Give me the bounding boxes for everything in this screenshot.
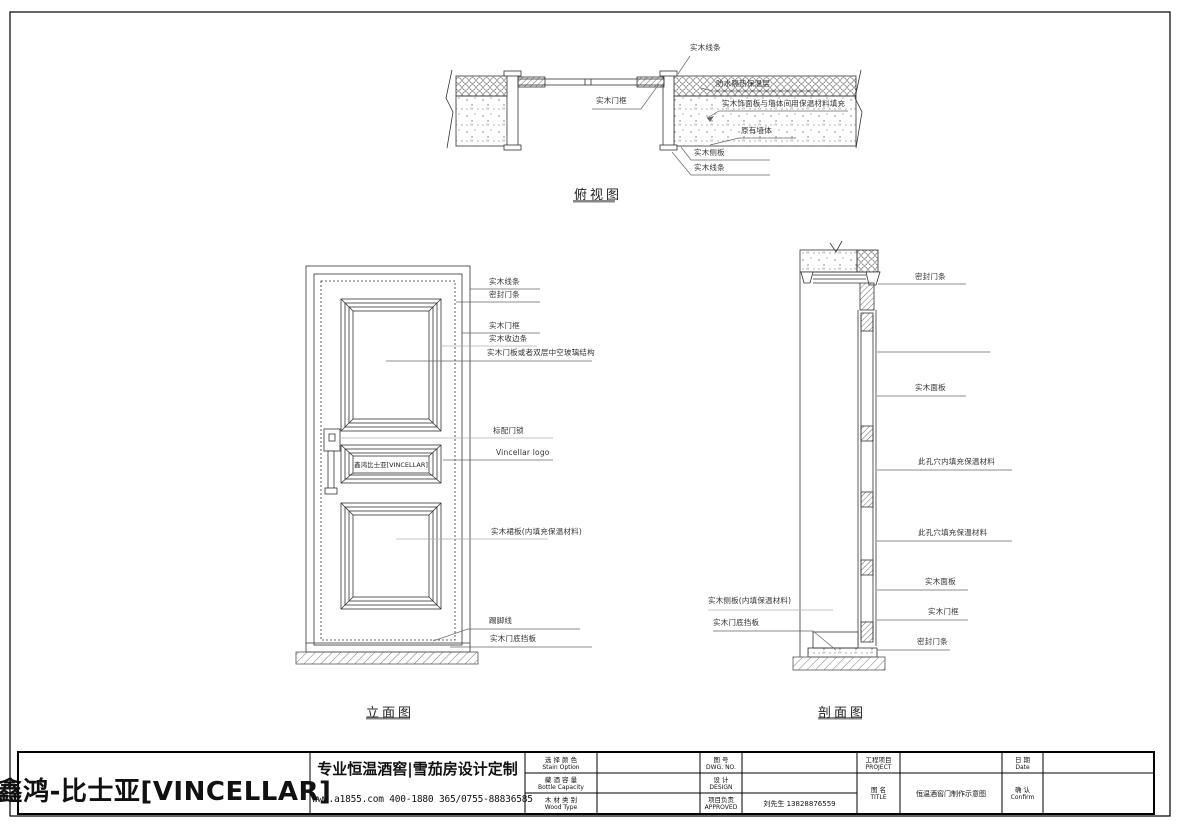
label-trim-top: 实木线条 (690, 44, 721, 53)
label-trim: 实木线条 (489, 278, 520, 287)
label-side-panel-fill: 实木侧板(内填保温材料) (708, 597, 791, 606)
door-jamb (507, 74, 518, 147)
section-drawing (708, 241, 1012, 720)
label-bottom-board: 实木门底挡板 (490, 635, 536, 644)
label-lower-panel: 实木裙板(内填充保温材料) (491, 528, 582, 537)
field-dwg-cn: 图 号 (700, 756, 742, 764)
label-logo: Vincellar logo (496, 449, 550, 458)
break-mark (446, 70, 453, 148)
wall-concrete-hatch (456, 96, 512, 146)
label-seal-strip: 密封门条 (489, 291, 520, 300)
door-leaf-section (858, 310, 876, 646)
field-date: 日 期 Date (1002, 756, 1043, 771)
label-skirting: 踢脚线 (489, 617, 512, 626)
field-project-cn: 工程项目 (857, 756, 900, 764)
field-confirm-en: Confirm (1002, 794, 1043, 801)
field-wood-type: 木 材 类 别 Wood Type (525, 796, 597, 811)
label-lock: 标配门锁 (493, 427, 524, 436)
field-title-en: TITLE (857, 794, 900, 801)
label-seal-strip-bottom: 密封门条 (917, 638, 948, 647)
field-date-en: Date (1002, 764, 1043, 771)
label-cavity-fill-1: 此孔穴内填充保温材料 (918, 458, 995, 467)
door-jamb (663, 74, 674, 147)
label-door-frame-section: 实木门框 (928, 608, 959, 617)
label-face-panel-top: 实木面板 (915, 384, 946, 393)
company-contact: www.a1855.com 400-1880 365/0755-88836585 (312, 794, 523, 805)
field-project: 工程项目 PROJECT (857, 756, 900, 771)
drawing-title-value: 恒温酒窖门制作示意图 (900, 789, 1002, 799)
section-title: 剖面图 (818, 702, 866, 721)
company-name: 鑫鸿-比士亚[VINCELLAR] (20, 766, 308, 812)
company-slogan: 专业恒温酒窖|雪茄房设计定制 (312, 758, 523, 779)
field-confirm-cn: 确 认 (1002, 786, 1043, 794)
threshold (808, 648, 877, 657)
elevation-drawing (296, 266, 592, 720)
field-stain-cn: 选 择 颜 色 (525, 756, 597, 764)
door-logo-text: 鑫鸿比士亚[VINCELLAR] (353, 459, 429, 469)
top-view-title: 俯视图 (574, 184, 622, 203)
approved-value: 刘先生 13828876559 (742, 799, 857, 809)
field-stain-option: 选 择 颜 色 Stain Option (525, 756, 597, 771)
field-confirm: 确 认 Confirm (1002, 786, 1043, 801)
field-wood-cn: 木 材 类 别 (525, 796, 597, 804)
field-approved-cn: 项目负责 (700, 796, 742, 804)
field-bottle-cn: 藏 酒 容 量 (525, 776, 597, 784)
label-bottom-board-section: 实木门底挡板 (713, 619, 759, 628)
label-panel-gap-fill: 实木饰面板与墙体间用保温材料填充 (722, 100, 845, 109)
label-original-wall: 原有墙体 (741, 127, 772, 136)
label-door-frame-plan: 实木门框 (596, 97, 627, 106)
wall-section (800, 250, 857, 272)
field-design: 设 计 DESIGN (700, 776, 742, 791)
field-bottle-en: Bottle Capacity (525, 784, 597, 791)
field-design-cn: 设 计 (700, 776, 742, 784)
field-dwg-no: 图 号 DWG. NO. (700, 756, 742, 771)
field-title-cn: 图 名 (857, 786, 900, 794)
label-door-frame: 实木门框 (489, 322, 520, 331)
ground-hatch (296, 652, 478, 664)
field-title: 图 名 TITLE (857, 786, 900, 801)
field-stain-en: Stain Option (525, 764, 597, 771)
label-waterproof-insulation: 防水隔热保温层 (716, 80, 770, 89)
door-head-frame (860, 283, 874, 310)
wall-insulation-hatch (456, 76, 512, 96)
field-wood-en: Wood Type (525, 804, 597, 811)
label-edge-trim: 实木收边条 (489, 335, 528, 344)
field-approved-en: APPROVED (700, 804, 742, 811)
label-trim-bottom: 实木线条 (694, 164, 725, 173)
ground-hatch (793, 657, 885, 670)
field-date-cn: 日 期 (1002, 756, 1043, 764)
drawing-sheet: 实木线条 防水隔热保温层 实木饰面板与墙体间用保温材料填充 原有墙体 实木侧板 … (0, 0, 1180, 826)
door-bottom-board (813, 632, 858, 648)
page-border (10, 12, 1170, 816)
elevation-title: 立面图 (366, 702, 414, 721)
field-approved: 项目负责 APPROVED (700, 796, 742, 811)
label-side-panel: 实木侧板 (694, 149, 725, 158)
drawing-canvas (0, 0, 1180, 826)
field-project-en: PROJECT (857, 764, 900, 771)
field-bottle-capacity: 藏 酒 容 量 Bottle Capacity (525, 776, 597, 791)
label-cavity-fill-2: 此孔穴填充保温材料 (918, 529, 987, 538)
field-design-en: DESIGN (700, 784, 742, 791)
label-panel-or-glass: 实木门板或者双层中空玻璃结构 (487, 349, 595, 358)
label-face-panel-bottom: 实木面板 (925, 578, 956, 587)
field-dwg-en: DWG. NO. (700, 764, 742, 771)
top-view-drawing (446, 56, 862, 203)
label-seal-strip-top: 密封门条 (915, 273, 946, 282)
